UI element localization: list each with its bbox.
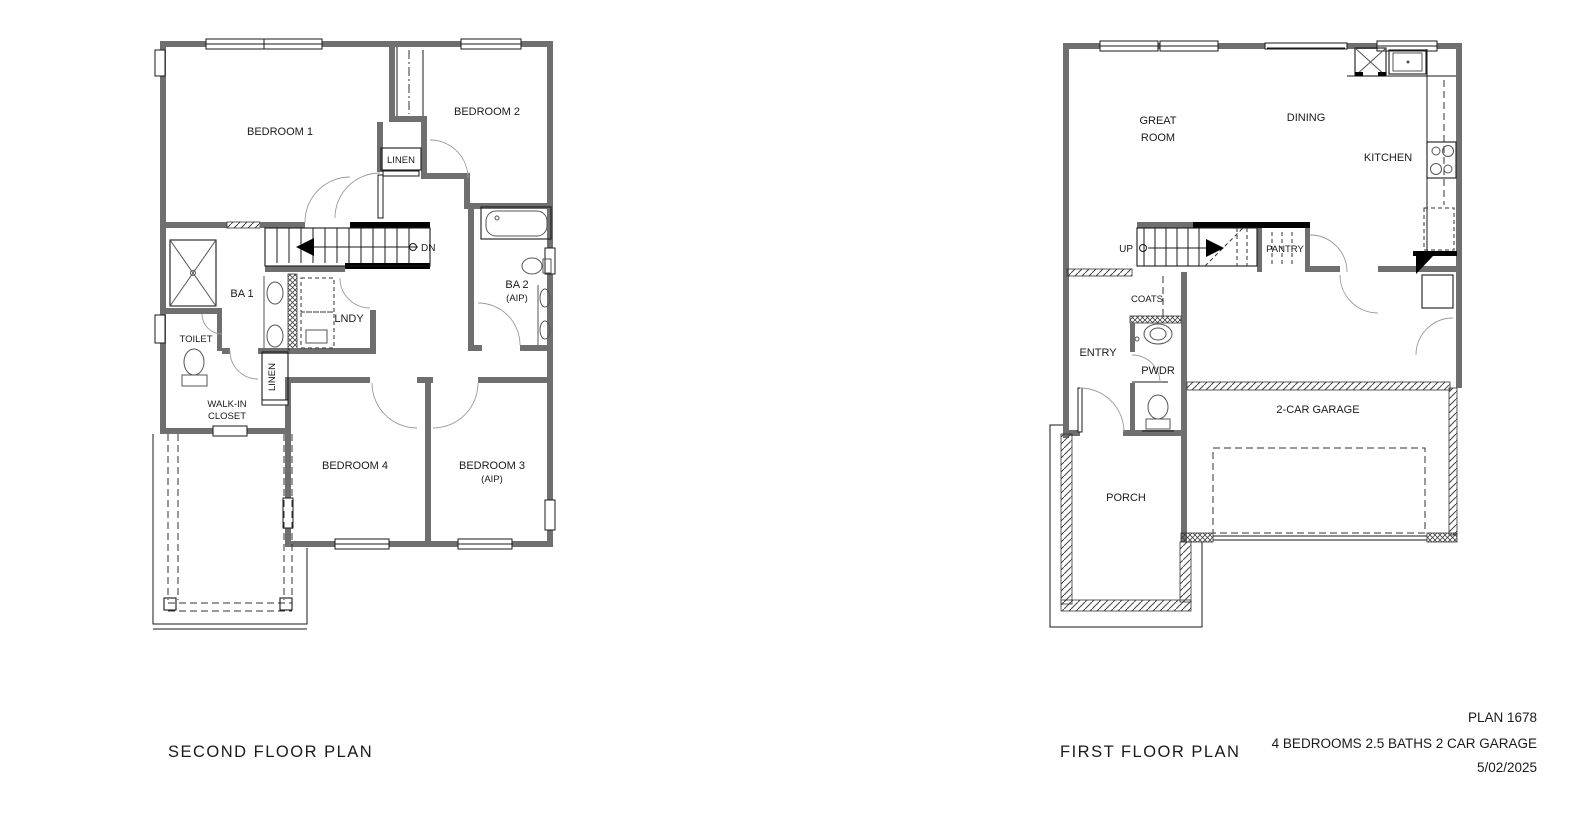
floor-plan-drawing: BEDROOM 1 BEDROOM 2 LINEN DN BA 1 TOILET… [0,0,1596,816]
toilet-icon [522,258,542,274]
room-label-pantry: PANTRY [1266,244,1304,255]
second-floor-title: SECOND FLOOR PLAN [168,743,373,761]
plan-number: PLAN 1678 [1468,710,1537,725]
first-floor-labels: GREAT ROOM DINING KITCHEN UP PANTRY COAT… [1079,112,1412,504]
room-label-kitchen: KITCHEN [1364,152,1412,164]
stairs-up-label: UP [1119,244,1133,255]
room-label-walkin-2: CLOSET [208,411,246,422]
first-floor-walls [1063,43,1462,542]
second-floor-fixtures [170,148,551,405]
stairs-dn-label: DN [421,243,435,254]
second-floor-stairs [265,228,430,266]
toilet-icon [184,349,204,375]
room-label-toilet: TOILET [179,334,212,345]
room-label-dining: DINING [1287,112,1326,124]
sink-icon [267,282,283,304]
room-label-entry: ENTRY [1079,347,1117,359]
room-label-pwdr: PWDR [1141,365,1175,377]
first-floor-plan: GREAT ROOM DINING KITCHEN UP PANTRY COAT… [1050,41,1462,627]
second-floor-plan: BEDROOM 1 BEDROOM 2 LINEN DN BA 1 TOILET… [153,39,555,629]
first-floor-porch-garage [1050,425,1425,627]
room-label-garage: 2-CAR GARAGE [1276,404,1359,416]
room-label-linen-upper: LINEN [387,155,415,166]
room-label-porch: PORCH [1106,492,1146,504]
room-label-walkin-1: WALK-IN [207,399,246,410]
room-label-bedroom3-note: (AIP) [481,474,503,485]
room-label-bedroom2: BEDROOM 2 [454,106,520,118]
title-block: SECOND FLOOR PLAN FIRST FLOOR PLAN PLAN … [168,710,1537,775]
room-label-ba1: BA 1 [230,288,253,300]
toilet-icon [1148,395,1168,419]
sink-icon [267,325,283,347]
plan-date: 5/02/2025 [1477,760,1537,775]
sink-icon [1144,324,1172,344]
stairs-down-arrow-icon [296,238,314,256]
room-label-great-1: GREAT [1139,115,1176,127]
first-floor-title: FIRST FLOOR PLAN [1060,743,1240,761]
room-label-linen-lower: LINEN [267,363,278,391]
room-label-ba2-note: (AIP) [506,293,528,304]
room-label-ba2: BA 2 [505,279,528,291]
stairs-up-arrow-icon [1206,239,1224,257]
floor-plan-sheet: BEDROOM 1 BEDROOM 2 LINEN DN BA 1 TOILET… [0,0,1596,816]
second-floor-roof-outline [153,434,307,629]
refrigerator-icon [1424,208,1454,250]
first-floor-powder [1135,324,1174,431]
car-stall-outline [1213,448,1425,533]
room-label-bedroom4: BEDROOM 4 [322,460,388,472]
room-label-lndy: LNDY [334,313,364,325]
room-label-bedroom1: BEDROOM 1 [247,126,313,138]
room-label-bedroom3: BEDROOM 3 [459,460,525,472]
plan-specs: 4 BEDROOMS 2.5 BATHS 2 CAR GARAGE [1272,736,1537,751]
washer-icon [301,278,334,312]
room-label-coats: COATS [1131,294,1163,305]
room-label-great-2: ROOM [1141,132,1175,144]
